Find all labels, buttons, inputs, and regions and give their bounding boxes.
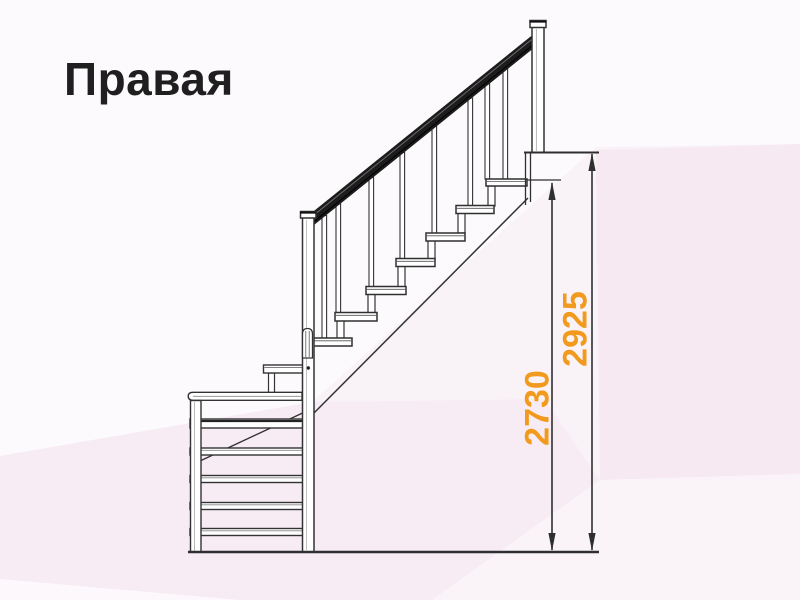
top-newel-post xyxy=(530,21,547,153)
left-post xyxy=(191,401,202,553)
dimension-label-2925: 2925 xyxy=(557,291,596,367)
fixing-dot xyxy=(307,366,310,369)
mid-newel-post xyxy=(300,212,317,553)
page-title: Правая xyxy=(64,52,234,106)
dimension-label-2730: 2730 xyxy=(519,370,558,446)
screenshot-canvas: Правая 2730 2925 xyxy=(0,0,800,600)
handrail-end-capsule xyxy=(303,329,313,359)
balusters xyxy=(322,69,508,338)
handrail xyxy=(309,37,535,225)
landing xyxy=(524,153,599,206)
